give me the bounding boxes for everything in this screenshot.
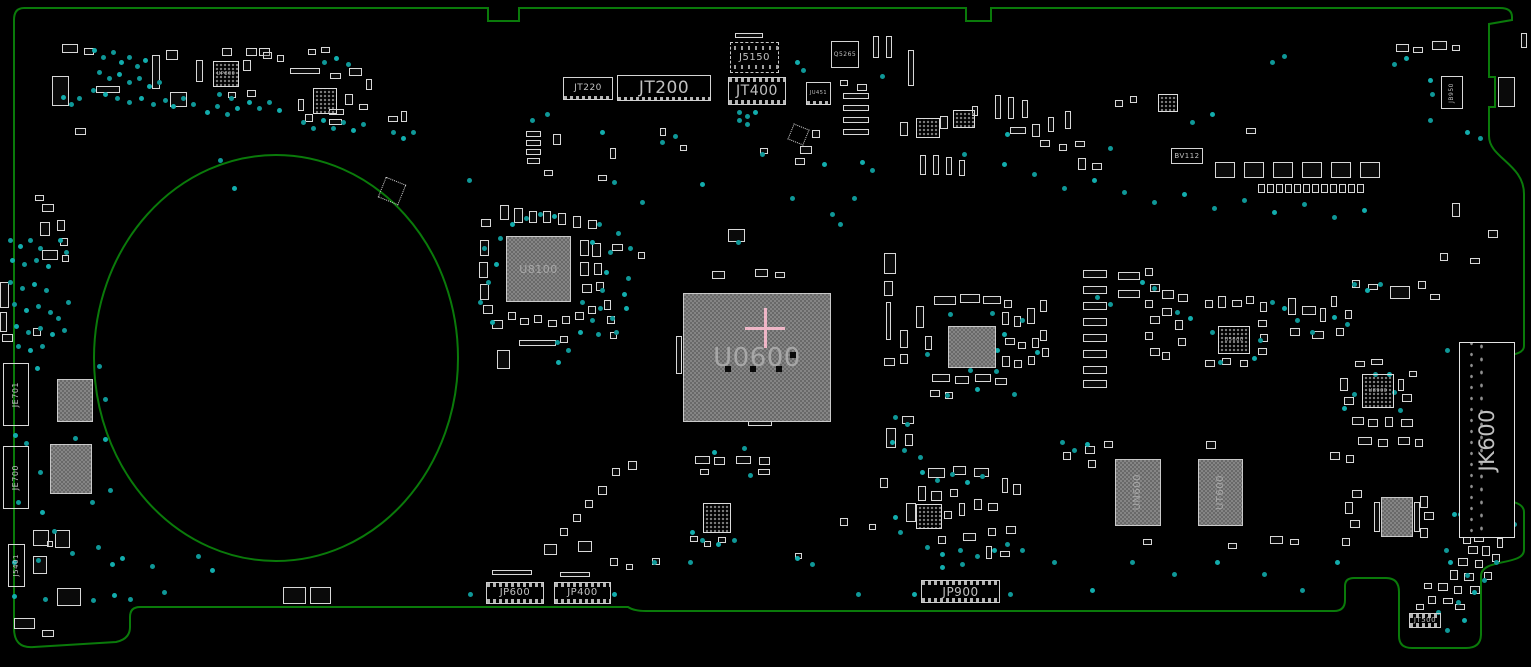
test-point (790, 196, 795, 201)
component (755, 269, 768, 277)
test-point (467, 178, 472, 183)
test-point (1140, 280, 1145, 285)
component (1042, 348, 1049, 357)
test-point (1335, 560, 1340, 565)
component (1059, 144, 1067, 151)
component (690, 536, 698, 542)
test-point (1472, 590, 1477, 595)
test-point (556, 360, 561, 365)
component (35, 195, 44, 201)
test-point (1262, 572, 1267, 577)
test-point (225, 112, 230, 117)
component (931, 491, 942, 501)
component (612, 468, 620, 476)
component (298, 99, 304, 111)
component (1088, 460, 1096, 468)
component (514, 208, 523, 223)
component (1104, 441, 1113, 448)
component-jb950[interactable]: JB950 (1441, 76, 1463, 109)
test-point (945, 393, 950, 398)
test-point (40, 344, 45, 349)
test-point (965, 480, 970, 485)
component (1396, 44, 1409, 52)
component (283, 587, 306, 604)
component (62, 44, 78, 53)
test-point (990, 311, 995, 316)
component (1443, 598, 1453, 604)
component-label: JE700 (12, 465, 20, 490)
component (1205, 300, 1213, 308)
component (1390, 286, 1410, 299)
component (497, 350, 510, 369)
test-point (1445, 628, 1450, 633)
component (1246, 296, 1254, 304)
component (526, 140, 541, 146)
test-point (566, 348, 571, 353)
test-point (77, 96, 82, 101)
component (1085, 446, 1095, 454)
component (1130, 96, 1137, 103)
component (775, 272, 785, 278)
component-label: JP400 (567, 588, 598, 598)
component (700, 469, 709, 475)
component (1438, 583, 1448, 591)
component (1303, 184, 1310, 193)
component (1290, 328, 1300, 336)
component (534, 315, 542, 323)
component (626, 564, 633, 570)
component-je701[interactable]: JE701 (3, 363, 29, 426)
component-label: JE701 (12, 382, 20, 407)
component (1402, 394, 1412, 402)
component (1083, 334, 1107, 342)
component-un600[interactable]: UN600 (1115, 459, 1161, 526)
test-point (35, 366, 40, 371)
component (1258, 184, 1265, 193)
component-jp600[interactable]: JP600 (486, 582, 544, 604)
test-point (1175, 310, 1180, 315)
test-point (1448, 560, 1453, 565)
component (1498, 77, 1515, 107)
test-point (1085, 442, 1090, 447)
component (573, 216, 581, 228)
test-point (97, 364, 102, 369)
component-jp900[interactable]: JP900 (921, 580, 1000, 603)
component-qfn-left-2 (50, 444, 92, 494)
component (1083, 286, 1107, 294)
component (1302, 162, 1322, 178)
test-point (163, 98, 168, 103)
component (604, 300, 611, 310)
component (1294, 184, 1301, 193)
test-point (524, 216, 529, 221)
test-point (1428, 78, 1433, 83)
component (321, 47, 330, 53)
component (1339, 184, 1346, 193)
component (480, 284, 489, 300)
component (959, 160, 965, 176)
component (558, 213, 566, 225)
test-point (992, 548, 997, 553)
component (800, 146, 812, 154)
component (1360, 162, 1380, 178)
test-point (838, 222, 843, 227)
test-point (555, 340, 560, 345)
component (1032, 124, 1040, 137)
component (1452, 203, 1460, 217)
component (908, 50, 914, 86)
component-u0600[interactable]: U0600 (683, 293, 831, 422)
test-point (538, 212, 543, 217)
component-qfn-tm (916, 118, 940, 138)
component (1260, 302, 1267, 312)
fan-cutout-outline (94, 155, 458, 561)
test-point (498, 236, 503, 241)
component (1320, 308, 1326, 322)
component (1428, 596, 1436, 604)
test-point (10, 258, 15, 263)
test-point (612, 592, 617, 597)
component-label: JK600 (1477, 409, 1498, 472)
component (1018, 342, 1026, 349)
component (1415, 439, 1423, 447)
test-point (112, 593, 117, 598)
test-point (1345, 322, 1350, 327)
test-point (36, 304, 41, 309)
component-bv112[interactable]: BV112 (1171, 148, 1203, 164)
component-jt400[interactable]: JT400 (728, 77, 786, 105)
test-point (1444, 548, 1449, 553)
test-point (486, 280, 491, 285)
component (974, 499, 982, 510)
component (995, 95, 1001, 119)
component-qfn-left-1 (57, 379, 93, 422)
component (1452, 45, 1460, 51)
component (1010, 127, 1026, 134)
test-point (18, 244, 23, 249)
test-point (267, 100, 272, 105)
test-point (143, 58, 148, 63)
test-point (1494, 560, 1499, 565)
component (1342, 538, 1350, 546)
component (714, 457, 725, 465)
test-point (311, 126, 316, 131)
component (884, 253, 896, 274)
test-point (1282, 54, 1287, 59)
test-point (1188, 316, 1193, 321)
test-point (795, 60, 800, 65)
test-point (1152, 200, 1157, 205)
component (812, 130, 820, 138)
component (526, 149, 541, 155)
test-point (107, 76, 112, 81)
test-point (120, 556, 125, 561)
test-point (101, 55, 106, 60)
test-point (1404, 56, 1409, 61)
component (1065, 111, 1071, 129)
test-point (34, 258, 39, 263)
test-point (277, 108, 282, 113)
component (988, 528, 996, 536)
test-point (1482, 578, 1487, 583)
component-jt200[interactable]: JT200 (617, 75, 711, 101)
test-point (247, 100, 252, 105)
test-point (736, 240, 741, 245)
test-point (92, 48, 97, 53)
component-label: UT600 (1216, 475, 1226, 510)
component (520, 318, 529, 325)
test-point (1282, 306, 1287, 311)
test-point (912, 592, 917, 597)
component-jt220[interactable]: JT220 (563, 77, 613, 100)
test-point (810, 562, 815, 567)
component (1092, 163, 1102, 170)
component (986, 546, 992, 559)
test-point (494, 262, 499, 267)
component (1424, 512, 1434, 520)
component-qfn-cb (703, 503, 731, 533)
component (1331, 162, 1351, 178)
component (330, 73, 341, 79)
test-point (994, 369, 999, 374)
component (1302, 306, 1316, 315)
component-jk600[interactable]: JK600 (1459, 342, 1515, 538)
component (932, 374, 950, 382)
component (1008, 97, 1014, 119)
test-point (218, 158, 223, 163)
component-label: JP600 (500, 588, 531, 598)
component (1348, 184, 1355, 193)
test-point (50, 332, 55, 337)
component (349, 68, 362, 76)
component (1398, 437, 1410, 445)
test-point (127, 55, 132, 60)
test-point (1270, 60, 1275, 65)
test-point (920, 470, 925, 475)
test-point (411, 130, 416, 135)
test-point (137, 76, 142, 81)
component (1321, 184, 1328, 193)
test-point (1182, 192, 1187, 197)
component (1368, 419, 1378, 427)
test-point (56, 316, 61, 321)
test-point (1210, 112, 1215, 117)
component-qfn-tl2 (313, 88, 337, 114)
component (548, 320, 557, 327)
component-label: JB950 (1449, 83, 1455, 103)
component (580, 240, 589, 256)
component (578, 541, 592, 552)
component (843, 105, 869, 111)
component (573, 514, 581, 522)
component (988, 503, 998, 511)
test-point (578, 330, 583, 335)
component (1040, 300, 1047, 312)
component-up800[interactable]: UP800 (213, 61, 239, 87)
test-point (1378, 282, 1383, 287)
test-point (128, 597, 133, 602)
test-point (737, 110, 742, 115)
component (75, 128, 86, 135)
component (735, 33, 763, 38)
component (918, 486, 926, 501)
component (1330, 452, 1340, 460)
component (1418, 281, 1426, 289)
test-point (902, 448, 907, 453)
test-point (135, 64, 140, 69)
test-point (1452, 512, 1457, 517)
test-point (616, 231, 621, 236)
component (680, 145, 687, 151)
component (916, 306, 924, 328)
test-point (28, 238, 33, 243)
component (543, 211, 551, 223)
component-q5265[interactable]: Q5265 (831, 41, 859, 68)
test-point (322, 60, 327, 65)
component (1285, 184, 1292, 193)
component (1475, 560, 1483, 568)
test-point (1258, 338, 1263, 343)
test-point (90, 500, 95, 505)
test-point (1130, 560, 1135, 565)
test-point (38, 246, 43, 251)
component-u8900[interactable]: U8900 (1362, 374, 1394, 408)
component (1232, 300, 1242, 307)
component-je700[interactable]: JE700 (3, 446, 29, 509)
component (840, 80, 848, 86)
test-point (1272, 210, 1277, 215)
component (940, 116, 948, 129)
component (1458, 558, 1468, 566)
test-point (66, 300, 71, 305)
test-point (40, 510, 45, 515)
test-point (624, 306, 629, 311)
component-u8100[interactable]: U8100 (506, 236, 571, 302)
test-point (73, 436, 78, 441)
test-point (217, 92, 222, 97)
component (1488, 230, 1498, 238)
component (920, 155, 926, 175)
component (1006, 526, 1016, 534)
component (1352, 417, 1364, 425)
component (1178, 338, 1186, 346)
test-point (1398, 408, 1403, 413)
test-point (12, 302, 17, 307)
component (96, 86, 120, 93)
component (366, 79, 372, 90)
component (308, 49, 316, 55)
test-point (968, 368, 973, 373)
component (544, 170, 553, 176)
component (1002, 356, 1010, 367)
test-point (795, 556, 800, 561)
component-label: BV112 (1174, 153, 1199, 160)
test-point (97, 70, 102, 75)
test-point (745, 122, 750, 127)
test-point (688, 560, 693, 565)
test-point (1210, 330, 1215, 335)
component (1244, 162, 1264, 178)
test-point (1445, 348, 1450, 353)
test-point (22, 262, 27, 267)
boardview-canvas: JT220JT200J5150JT400JU451Q5265BV112UP800… (0, 0, 1531, 667)
component (1215, 162, 1235, 178)
test-point (1095, 295, 1100, 300)
component (1083, 366, 1107, 374)
component (995, 378, 1007, 385)
component (40, 222, 50, 236)
test-point (1392, 62, 1397, 67)
test-point (36, 558, 41, 563)
component (1206, 441, 1216, 449)
component (1222, 358, 1231, 365)
test-point (150, 564, 155, 569)
test-point (24, 308, 29, 313)
component (1454, 586, 1462, 594)
component-qfn-tm2 (953, 110, 975, 128)
component (1401, 419, 1413, 427)
component-label: JT220 (574, 84, 602, 93)
component (1150, 348, 1160, 356)
test-point (13, 433, 18, 438)
component (950, 489, 958, 497)
component (843, 117, 869, 123)
component (638, 252, 645, 259)
component-u5600[interactable]: U5600 (1218, 326, 1250, 354)
component (960, 294, 980, 303)
test-point (822, 162, 827, 167)
test-point (975, 554, 980, 559)
component-ju451[interactable]: JU451 (806, 82, 831, 105)
component (1345, 502, 1353, 514)
component-label: JP900 (942, 586, 978, 598)
component (1276, 184, 1283, 193)
test-point (8, 280, 13, 285)
component (1450, 570, 1458, 580)
component (1413, 47, 1423, 53)
test-point (64, 250, 69, 255)
test-point (215, 104, 220, 109)
component (1420, 528, 1428, 538)
component (975, 374, 991, 382)
component (562, 316, 570, 324)
component-j5401[interactable]: J5401 (8, 544, 25, 587)
test-point (28, 348, 33, 353)
component (1145, 332, 1153, 340)
component-jp400[interactable]: JP400 (554, 582, 611, 604)
test-point (626, 276, 631, 281)
test-point (181, 96, 186, 101)
test-point (893, 415, 898, 420)
test-point (48, 310, 53, 315)
component (388, 116, 398, 122)
test-point (1352, 392, 1357, 397)
test-point (856, 592, 861, 597)
component (1175, 320, 1183, 330)
component-jt500[interactable]: JT500 (1409, 613, 1441, 628)
component-ut600[interactable]: UT600 (1198, 459, 1243, 526)
component-j5150[interactable]: J5150 (730, 42, 779, 73)
test-point (171, 104, 176, 109)
component-label: JT500 (1414, 617, 1436, 624)
test-point (1092, 178, 1097, 183)
test-point (918, 455, 923, 460)
component-label: JT400 (736, 84, 778, 98)
component (47, 541, 53, 547)
component (1468, 546, 1478, 554)
test-point (1242, 198, 1247, 203)
component (736, 456, 751, 464)
